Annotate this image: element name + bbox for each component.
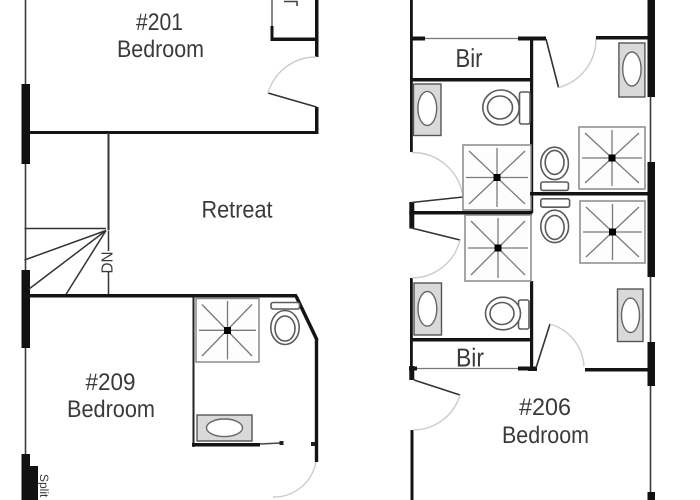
- svg-text:Retreat: Retreat: [202, 197, 273, 224]
- svg-text:Bedroom: Bedroom: [502, 422, 589, 449]
- svg-text:#209: #209: [86, 369, 136, 396]
- svg-text:Bedroom: Bedroom: [117, 36, 204, 63]
- svg-text:#206: #206: [519, 394, 571, 421]
- svg-text:DN: DN: [100, 252, 117, 274]
- svg-text:#201: #201: [136, 9, 183, 36]
- svg-text:Bedroom: Bedroom: [67, 396, 155, 423]
- svg-text:Bir: Bir: [456, 43, 483, 73]
- svg-text:Split: Split: [37, 474, 51, 498]
